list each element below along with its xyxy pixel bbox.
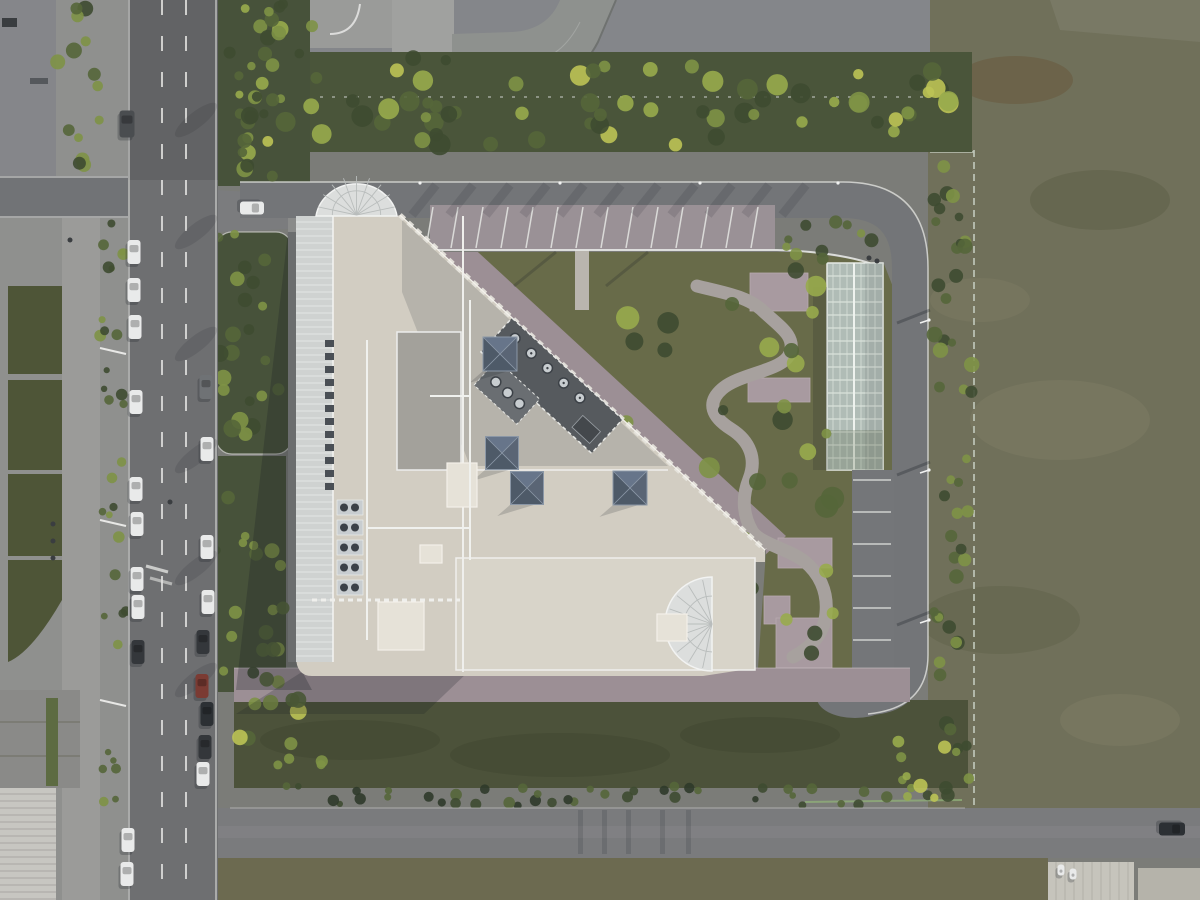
parked-car: [237, 200, 264, 215]
aerial-photo-canvas: [0, 0, 1200, 900]
wall-pilaster-shadow: [602, 810, 607, 854]
tree: [99, 316, 106, 323]
tree: [225, 327, 241, 343]
tree: [104, 395, 114, 405]
tree: [927, 327, 943, 343]
tree: [503, 797, 515, 809]
street-lamp: [836, 181, 839, 184]
tree: [229, 606, 242, 619]
tree: [224, 47, 236, 59]
tree: [283, 782, 291, 790]
tree: [782, 243, 790, 251]
car-windshield: [130, 245, 139, 252]
tree: [782, 472, 798, 488]
tree: [643, 102, 658, 117]
tree: [657, 343, 672, 358]
greenhouse-green-tint: [827, 430, 883, 470]
tree: [515, 107, 528, 120]
rooftop-structure: [420, 545, 442, 563]
bottom-grass: [216, 858, 1048, 900]
left-sidewalk: [62, 176, 100, 900]
tree: [223, 420, 241, 438]
tree: [737, 79, 758, 100]
condenser-row: [337, 500, 363, 595]
tree: [938, 91, 958, 111]
parked-car: [118, 111, 135, 141]
condenser-fan: [351, 564, 359, 572]
striped-roof-building: [0, 788, 56, 900]
car-body: [120, 111, 135, 138]
tree: [245, 396, 255, 406]
tree: [218, 384, 230, 396]
motorcycle: [51, 539, 56, 544]
tree: [725, 297, 739, 311]
tree: [421, 112, 431, 122]
tree: [106, 511, 113, 518]
car-windshield: [203, 540, 212, 547]
roof-vent: [325, 483, 334, 490]
wall-pilaster-shadow: [686, 810, 691, 854]
tree: [351, 105, 373, 127]
tree: [441, 55, 451, 65]
tree: [939, 490, 950, 501]
tree: [100, 326, 109, 335]
garden-walkway: [575, 250, 589, 310]
parked-car: [199, 702, 214, 729]
tree: [669, 138, 682, 151]
tree: [113, 640, 123, 650]
tree: [509, 76, 524, 91]
tree: [788, 262, 804, 278]
street-lamp: [418, 181, 421, 184]
parked-car: [130, 595, 145, 622]
tree: [708, 128, 725, 145]
tree: [909, 75, 925, 91]
tree: [799, 443, 816, 460]
tree: [273, 760, 282, 769]
tree: [857, 229, 865, 237]
tree: [226, 631, 237, 642]
car-windshield: [131, 320, 140, 327]
motorcycle: [68, 238, 73, 243]
parked-car: [120, 828, 135, 855]
tree: [312, 124, 332, 144]
tree: [932, 278, 946, 292]
tree: [871, 116, 884, 129]
tree: [111, 764, 121, 774]
tree: [817, 253, 829, 265]
road-shade-top: [128, 0, 218, 180]
tree: [702, 71, 723, 92]
tree: [107, 220, 115, 228]
green-wall: [46, 698, 58, 786]
tree: [945, 530, 957, 542]
condenser-fan: [340, 544, 348, 552]
tree: [581, 93, 600, 112]
tree: [789, 792, 796, 799]
tree: [378, 98, 399, 119]
tree: [414, 132, 430, 148]
tree: [938, 741, 951, 754]
tree: [625, 332, 643, 350]
lawn-patch: [450, 733, 670, 777]
tree: [103, 261, 115, 273]
tree: [952, 748, 960, 756]
tree: [328, 795, 339, 806]
field-patch: [957, 56, 1073, 104]
tree: [944, 723, 956, 735]
tree: [843, 220, 852, 229]
tree: [699, 457, 720, 478]
parked-car: [128, 390, 143, 417]
tree: [480, 784, 490, 794]
tree: [239, 539, 248, 548]
tree: [346, 94, 360, 108]
tree: [807, 783, 818, 794]
motorcycle: [875, 259, 880, 264]
tree: [594, 108, 607, 121]
parked-car: [119, 862, 134, 889]
car-windshield: [130, 283, 139, 290]
motorcycle: [51, 556, 56, 561]
wall-pilaster-shadow: [660, 810, 665, 854]
tree: [962, 505, 974, 517]
tree: [63, 124, 75, 136]
tree: [961, 741, 971, 751]
tree: [896, 752, 906, 762]
tree: [252, 92, 262, 102]
roof-panel-gray: [397, 332, 461, 470]
tree: [791, 83, 811, 103]
car-windshield: [1072, 874, 1075, 877]
tree: [258, 302, 267, 311]
roof-vent: [325, 457, 334, 464]
tree: [965, 386, 977, 398]
parked-vehicle: [2, 18, 17, 27]
tree: [274, 1, 286, 13]
tree: [384, 794, 391, 801]
tree: [272, 26, 287, 41]
car-windshield: [132, 395, 141, 402]
tree: [684, 783, 694, 793]
roof-vent: [325, 470, 334, 477]
roof-vent: [325, 379, 334, 386]
rooftop-structure: [657, 614, 687, 641]
tree: [276, 112, 296, 132]
tree: [777, 399, 791, 413]
tree: [99, 508, 107, 516]
tree: [119, 400, 127, 408]
tree: [563, 795, 572, 804]
tree: [807, 626, 822, 641]
tree: [806, 306, 819, 319]
tree: [923, 87, 935, 99]
tree: [105, 749, 111, 755]
car-windshield: [201, 740, 210, 747]
car-windshield: [199, 767, 208, 774]
bottom-road-worn: [216, 826, 1200, 838]
tree: [413, 70, 433, 90]
tree: [758, 783, 768, 793]
parked-car: [195, 762, 210, 789]
car-windshield: [203, 442, 212, 449]
tree: [107, 473, 118, 484]
tree: [853, 69, 863, 79]
tree: [266, 93, 279, 106]
tree: [399, 91, 419, 111]
car-windshield: [204, 595, 213, 602]
field-patch: [1060, 694, 1180, 746]
tree: [405, 50, 421, 66]
car-windshield: [122, 116, 133, 124]
tree: [660, 786, 669, 795]
condenser-fan: [340, 564, 348, 572]
parked-car: [195, 630, 210, 657]
tree: [804, 646, 819, 661]
tree: [821, 429, 831, 439]
parked-car: [199, 437, 214, 464]
field-patch: [970, 380, 1150, 460]
tree: [767, 74, 788, 95]
tree: [964, 357, 979, 372]
tree: [295, 49, 305, 59]
condenser-fan: [351, 544, 359, 552]
left-lawn: [8, 474, 62, 556]
tree: [946, 189, 960, 203]
tree: [657, 312, 679, 334]
tree: [942, 620, 956, 634]
tree: [117, 457, 126, 466]
tree: [260, 356, 270, 366]
tree: [948, 339, 956, 347]
tree: [949, 569, 964, 584]
tree: [234, 71, 243, 80]
tree: [483, 137, 498, 152]
tree: [956, 544, 967, 555]
city-left-zone: [0, 0, 130, 900]
tree: [235, 91, 243, 99]
tree: [267, 171, 278, 182]
tree: [528, 131, 545, 148]
tree: [110, 757, 116, 763]
car-windshield: [124, 833, 133, 840]
tree: [244, 324, 255, 335]
tree: [81, 36, 91, 46]
parked-car: [198, 375, 213, 402]
bottom-right-building-2: [1138, 868, 1200, 900]
field-patch: [1030, 170, 1170, 230]
tree: [247, 62, 255, 70]
tree: [424, 792, 434, 802]
tree: [923, 62, 942, 81]
tree: [629, 787, 638, 796]
roof-vent: [325, 366, 334, 373]
car-windshield: [203, 707, 212, 714]
left-lawn: [8, 286, 62, 374]
tree: [284, 737, 297, 750]
left-lawn: [8, 380, 62, 470]
tree: [422, 97, 433, 108]
tree: [859, 786, 870, 797]
tree: [934, 669, 947, 682]
parked-car: [129, 567, 144, 594]
tree: [71, 3, 83, 15]
tree: [930, 794, 938, 802]
tree: [790, 248, 802, 260]
tree: [112, 329, 123, 340]
condenser-fan: [340, 524, 348, 532]
greenhouse: [813, 263, 883, 470]
tree: [934, 657, 946, 669]
tree: [258, 47, 272, 61]
tree: [821, 487, 844, 510]
tree: [429, 133, 451, 155]
motorcycle: [168, 500, 173, 505]
condenser-fan: [340, 504, 348, 512]
parked-car: [129, 512, 144, 539]
tree: [913, 779, 927, 793]
pavement-mark: [30, 78, 48, 84]
tree: [958, 553, 971, 566]
tree: [303, 98, 319, 114]
tree: [694, 787, 702, 795]
brick-terrace: [748, 378, 810, 402]
tree: [893, 736, 905, 748]
tree: [88, 68, 101, 81]
tree: [952, 508, 963, 519]
tree: [355, 793, 366, 804]
field-patch: [920, 586, 1080, 654]
tree: [939, 781, 953, 795]
condenser-fan: [351, 504, 359, 512]
rooftop-structure: [378, 602, 424, 650]
tree: [946, 475, 955, 484]
tree: [929, 607, 938, 616]
roof-vent: [325, 392, 334, 399]
striped-roof: [0, 788, 56, 900]
tree: [669, 782, 679, 792]
tree: [931, 217, 940, 226]
tree: [881, 791, 892, 802]
wall-pilaster-shadow: [578, 810, 583, 854]
street-lamp: [698, 181, 701, 184]
tree: [784, 343, 799, 358]
tree: [230, 272, 245, 287]
tree: [534, 790, 542, 798]
tree: [112, 796, 119, 803]
tree: [232, 730, 248, 746]
tree: [244, 111, 257, 124]
tree: [262, 136, 273, 147]
car-windshield: [252, 204, 259, 213]
roof-vent: [325, 353, 334, 360]
tree: [696, 105, 709, 118]
tree: [749, 473, 766, 490]
tree: [962, 454, 971, 463]
tree: [316, 755, 328, 767]
tree: [438, 798, 446, 806]
tree: [259, 109, 268, 118]
parked-car: [199, 535, 214, 562]
tree: [50, 54, 65, 69]
tree: [888, 126, 900, 138]
tree: [110, 569, 121, 580]
tree: [240, 159, 254, 173]
tree: [957, 239, 972, 254]
car-windshield: [134, 600, 143, 607]
parked-car: [197, 735, 212, 762]
roof-vent: [325, 405, 334, 412]
bottom-zone: [216, 808, 1200, 900]
tree: [643, 62, 658, 77]
tree: [441, 106, 458, 123]
car-windshield: [1172, 825, 1180, 834]
parked-car: [130, 640, 145, 667]
car-windshield: [198, 679, 207, 686]
tree: [99, 765, 107, 773]
tree: [827, 607, 839, 619]
tree: [616, 306, 639, 329]
tree: [586, 63, 601, 78]
parked-car: [126, 240, 141, 267]
car-windshield: [133, 517, 142, 524]
tree: [95, 116, 104, 125]
parked-car: [200, 590, 215, 617]
tree: [780, 613, 792, 625]
parked-car: [127, 315, 142, 342]
tree: [669, 792, 680, 803]
tree: [73, 157, 86, 170]
tree: [949, 269, 963, 283]
tree: [109, 503, 117, 511]
tree: [241, 4, 250, 13]
tree: [219, 666, 228, 675]
wall-pilaster-shadow: [626, 810, 631, 854]
parked-car: [128, 477, 143, 504]
street-lamp: [558, 181, 561, 184]
tree: [230, 230, 239, 239]
car-windshield: [133, 572, 142, 579]
tree: [903, 792, 912, 801]
tree: [901, 106, 914, 119]
car-windshield: [123, 867, 132, 874]
roof-vent: [325, 431, 334, 438]
east-parking-strip: [852, 470, 894, 672]
lawn-patch: [680, 717, 840, 753]
tree: [238, 293, 252, 307]
tree: [849, 92, 870, 113]
tree: [759, 337, 779, 357]
tree: [954, 478, 963, 487]
tree: [829, 97, 839, 107]
side-road: [0, 176, 130, 218]
car-windshield: [199, 635, 208, 642]
tree: [587, 786, 594, 793]
left-building-roof: [0, 690, 80, 788]
tree: [518, 783, 528, 793]
tree: [752, 796, 758, 802]
tree: [390, 63, 404, 77]
tree: [98, 239, 109, 250]
tree: [237, 134, 251, 148]
tree: [837, 800, 845, 808]
tree: [104, 367, 110, 373]
tree: [889, 112, 903, 126]
tree: [718, 405, 728, 415]
parked-car: [194, 674, 209, 701]
tree: [547, 798, 557, 808]
tree: [937, 160, 950, 173]
